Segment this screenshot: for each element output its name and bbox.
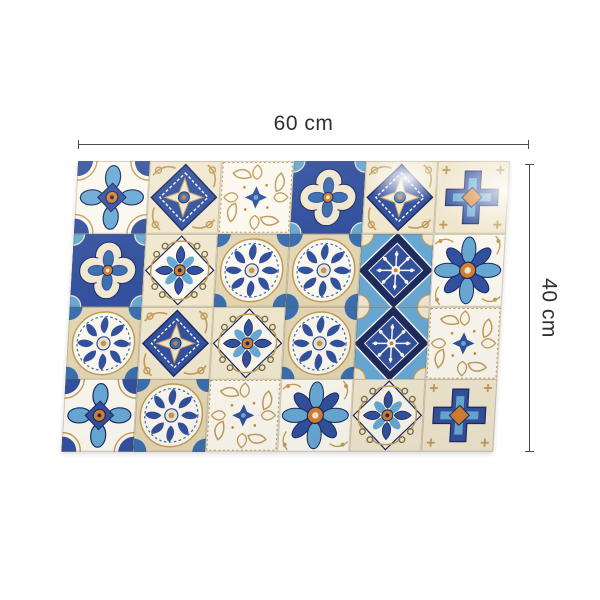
tile-quatrefoil <box>70 234 146 307</box>
height-dimension-label: 40 cm <box>537 278 562 338</box>
height-dimension-tick-top <box>525 164 534 165</box>
tile-quatrefoil <box>290 161 366 234</box>
tile-cross-tile <box>421 379 497 452</box>
width-dimension-tick-right <box>528 140 529 149</box>
tile-scroll-flower <box>142 234 218 307</box>
tile-star-diamond <box>362 161 438 234</box>
tile-sky-flower <box>430 234 506 307</box>
tile-navy-snowflake <box>353 307 429 380</box>
tile-petal-cross <box>61 379 137 452</box>
tile-scroll-flower <box>349 379 425 452</box>
tile-medallion <box>214 234 290 307</box>
tile-medallion <box>281 307 357 380</box>
tile-gold-lattice <box>425 307 501 380</box>
tile-medallion <box>286 234 362 307</box>
figure-canvas: 60 cm <box>0 0 600 600</box>
tile-mat <box>61 161 510 452</box>
width-dimension-line <box>78 144 529 145</box>
tile-medallion <box>133 379 209 452</box>
tile-navy-snowflake <box>358 234 434 307</box>
height-dimension-line <box>529 164 530 452</box>
tile-scroll-flower <box>209 307 285 380</box>
tile-medallion <box>65 307 141 380</box>
tile-sky-flower <box>277 379 353 452</box>
tile-gold-lattice <box>205 379 281 452</box>
tile-petal-cross <box>74 161 150 234</box>
tile-star-diamond <box>137 307 213 380</box>
tile-cross-tile <box>434 161 510 234</box>
height-dimension-tick-bottom <box>525 451 534 452</box>
tile-grid <box>61 161 510 452</box>
tile-star-diamond <box>146 161 222 234</box>
tile-gold-lattice <box>218 161 294 234</box>
width-dimension-tick-left <box>78 140 79 149</box>
width-dimension-label: 60 cm <box>78 111 529 136</box>
